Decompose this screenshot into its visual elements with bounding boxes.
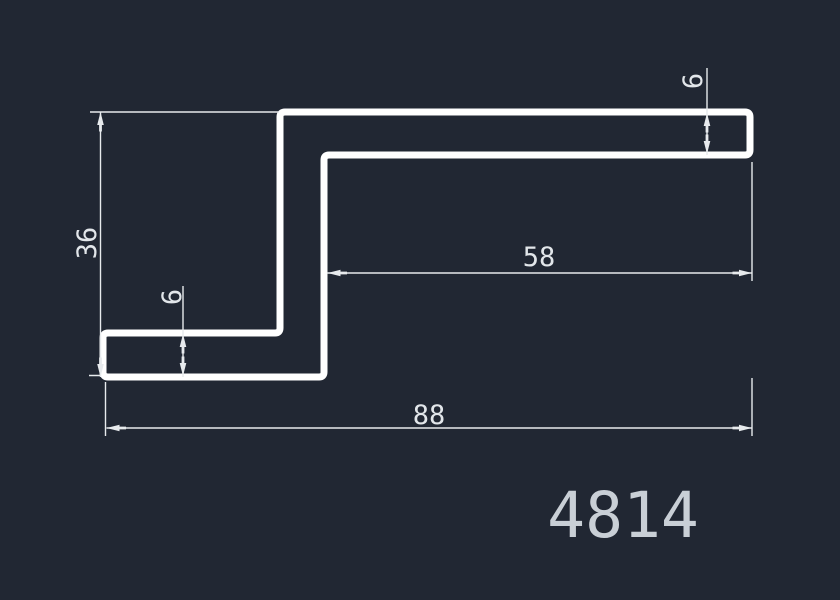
dim-label-88: 88 (413, 400, 446, 431)
part-number-label: 4814 (547, 479, 699, 552)
dim-label-36: 36 (72, 227, 103, 260)
dim-label-6-bottom: 6 (157, 289, 188, 305)
dim-label-58: 58 (523, 242, 556, 273)
cad-canvas: 36 6 6 58 88 4814 (0, 0, 840, 600)
canvas-background (0, 0, 840, 600)
dim-label-6-top: 6 (678, 73, 709, 89)
